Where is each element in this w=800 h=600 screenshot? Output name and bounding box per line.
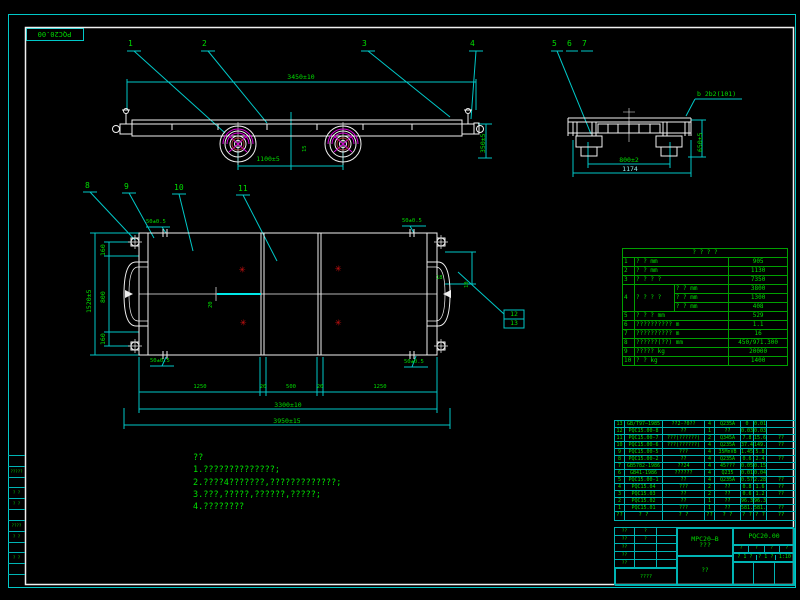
- signature-grid: ?? ? ?? ? ?? ?? ??: [615, 528, 677, 568]
- bom-row: 12PQC15.00-8??1 ??0.030.03: [615, 428, 796, 435]
- bom-row: 3PQC15.03??2 ??0.61.2??: [615, 491, 796, 498]
- margin-info-strip: ?????? ?? ?????? ?? ?: [8, 455, 25, 585]
- bom-header: ??? ?? ? ??? ?? ? ? ???: [615, 512, 796, 521]
- margin-cell: [8, 574, 25, 585]
- drawing-name: ???: [691, 542, 718, 549]
- corner-note-br: 50±0.5: [404, 360, 424, 366]
- callout-2: 2: [202, 40, 207, 48]
- dim-plan-r1-20a: 20: [260, 385, 267, 391]
- bom-row: 2PQC15.02??1 ??96.396.3: [615, 498, 796, 505]
- dim-side-small: 15: [303, 145, 309, 152]
- bom-row: 6GB41-1986??????4 Q2350.010.04: [615, 470, 796, 477]
- callout-5: 5: [552, 40, 557, 48]
- dim-side-wheelbase: 1100±5: [256, 156, 279, 163]
- callout-9: 9: [124, 183, 129, 191]
- drawing-code-cell: MPC20—B ???: [677, 528, 733, 556]
- signature-row: ??: [615, 560, 677, 568]
- corner-note-bl: 50±0.5: [150, 359, 170, 365]
- dim-plan-left-total: 1520±5: [86, 290, 93, 313]
- callout-13: 13: [510, 320, 518, 327]
- bom-table: 13GB/T97—1985??2-?0??4 Q235A00.01 12PQC1…: [614, 420, 796, 521]
- margin-cell: ? ?: [8, 498, 25, 509]
- callout-3: 3: [362, 40, 367, 48]
- note-line: 2.????4???????,?????????????;: [193, 477, 341, 489]
- weld-note: b 2b2(101): [697, 91, 736, 98]
- bom-row: 4PQC15.04???2 ??0.81.6??: [615, 484, 796, 491]
- dim-plan-left-160b: 160: [100, 333, 107, 345]
- signature-row: ??: [615, 552, 677, 560]
- note-line: 4.????????: [193, 501, 341, 513]
- drawing-scale: 1:10: [776, 555, 794, 560]
- bom-row: 13GB/T97—1985??2-?0??4 Q235A00.01: [615, 421, 796, 428]
- dim-plan-left-160a: 160: [100, 244, 107, 256]
- margin-cell: [8, 509, 25, 520]
- signature-bottom: ????: [615, 568, 677, 586]
- dim-side-overall: 3450±10: [287, 74, 314, 81]
- dim-end-width: 800±2: [619, 157, 639, 164]
- dim-plan-right-18: 18: [436, 276, 443, 282]
- title-block-spare: [733, 562, 795, 586]
- page-count: ? 1 ?: [757, 555, 776, 560]
- margin-cell: [8, 542, 25, 553]
- note-line: 3.???,?????,??????,?????;: [193, 489, 341, 501]
- margin-cell: [8, 455, 25, 466]
- corner-note-tr: 50±0.5: [402, 219, 422, 225]
- callout-6: 6: [567, 40, 572, 48]
- note-line: ??: [193, 452, 341, 464]
- dim-plan-r1-20b: 20: [317, 385, 324, 391]
- callout-8: 8: [85, 182, 90, 190]
- dim-plan-r1-1250b: 1250: [373, 385, 386, 391]
- small-cells-row: ? ? ? ?: [733, 545, 795, 553]
- dim-plan-r1-1250a: 1250: [193, 385, 206, 391]
- margin-cell: ? ?: [8, 531, 25, 542]
- dim-end-height: 650±5: [697, 132, 704, 152]
- callout-7: 7: [582, 40, 587, 48]
- signature-row: ??: [615, 544, 677, 552]
- signature-row: ?? ?: [615, 528, 677, 536]
- callout-10: 10: [174, 184, 184, 192]
- dim-plan-total2: 3950±15: [273, 418, 300, 425]
- sheet-count: ? 1 ?: [734, 555, 757, 560]
- title-block: ?? ? ?? ? ?? ?? ?? ???? MPC20—B ??? ?? P…: [614, 527, 794, 585]
- dim-plan-center-20: 20: [209, 301, 215, 308]
- signature-row: ?? ?: [615, 536, 677, 544]
- callout-11: 11: [238, 185, 248, 193]
- weld-mark: ✳: [239, 263, 246, 276]
- bom-row: 1PQC15.01???1 ??581.3581.3??: [615, 505, 796, 512]
- weld-mark: ✳: [335, 316, 342, 329]
- dim-side-height: 350±5: [480, 133, 487, 153]
- sheet-corner-label: PQC20.00: [27, 30, 82, 37]
- callout-1: 1: [128, 40, 133, 48]
- spec-table: ? ? ? ? 1? ? mm905 2? ? mm1130 3? ? ? ?7…: [622, 248, 788, 366]
- margin-cell: ? ?: [8, 552, 25, 563]
- sheet-scale-row: ? 1 ? ? 1 ? 1:10: [733, 553, 795, 562]
- cad-sheet: PQC20.00 1 2 3 4 5 6 7 8 9 10 11 12 13 3…: [0, 0, 800, 600]
- weld-mark: ✳: [240, 316, 247, 329]
- technical-notes: ??1.??????????????;2.????4???????,??????…: [193, 452, 341, 513]
- margin-cell: ? ?: [8, 487, 25, 498]
- corner-note-tl: 50±0.5: [146, 220, 166, 226]
- dim-plan-right-10: 10: [465, 281, 471, 288]
- margin-cell: ?????: [8, 466, 25, 477]
- part-code-cell: PQC20.00: [733, 528, 795, 545]
- dim-plan-r1-500: 500: [286, 385, 296, 391]
- callout-12: 12: [510, 311, 518, 318]
- bom-row: 7GB5782-1986??244 45???0.050.15: [615, 463, 796, 470]
- bom-row: 10PQC15.00-6???(??????)4 Q235A37.4149.7?…: [615, 442, 796, 449]
- bom-row: 11PQC15.00-7???(??????)2 Q345A7.815.6??: [615, 435, 796, 442]
- dim-end-overall: 1174: [622, 166, 638, 173]
- margin-cell: [8, 563, 25, 574]
- company-cell: ??: [677, 556, 733, 586]
- bom-row: 9PQC15.00-5???4 35MnVB1.455.8: [615, 449, 796, 456]
- bom-row: 5PQC15.00-1??4 Q235A0.572.28??: [615, 477, 796, 484]
- dim-plan-total1: 3300±10: [274, 402, 301, 409]
- margin-cell: ????: [8, 520, 25, 531]
- weld-mark: ✳: [335, 262, 342, 275]
- margin-cell: [8, 477, 25, 488]
- dim-plan-left-800: 800: [100, 291, 107, 303]
- callout-4: 4: [470, 40, 475, 48]
- spec-title: ? ? ? ?: [623, 249, 788, 258]
- bom-row: 8PQC15.00-2??4 Q235A0.62.4??: [615, 456, 796, 463]
- note-line: 1.??????????????;: [193, 464, 341, 476]
